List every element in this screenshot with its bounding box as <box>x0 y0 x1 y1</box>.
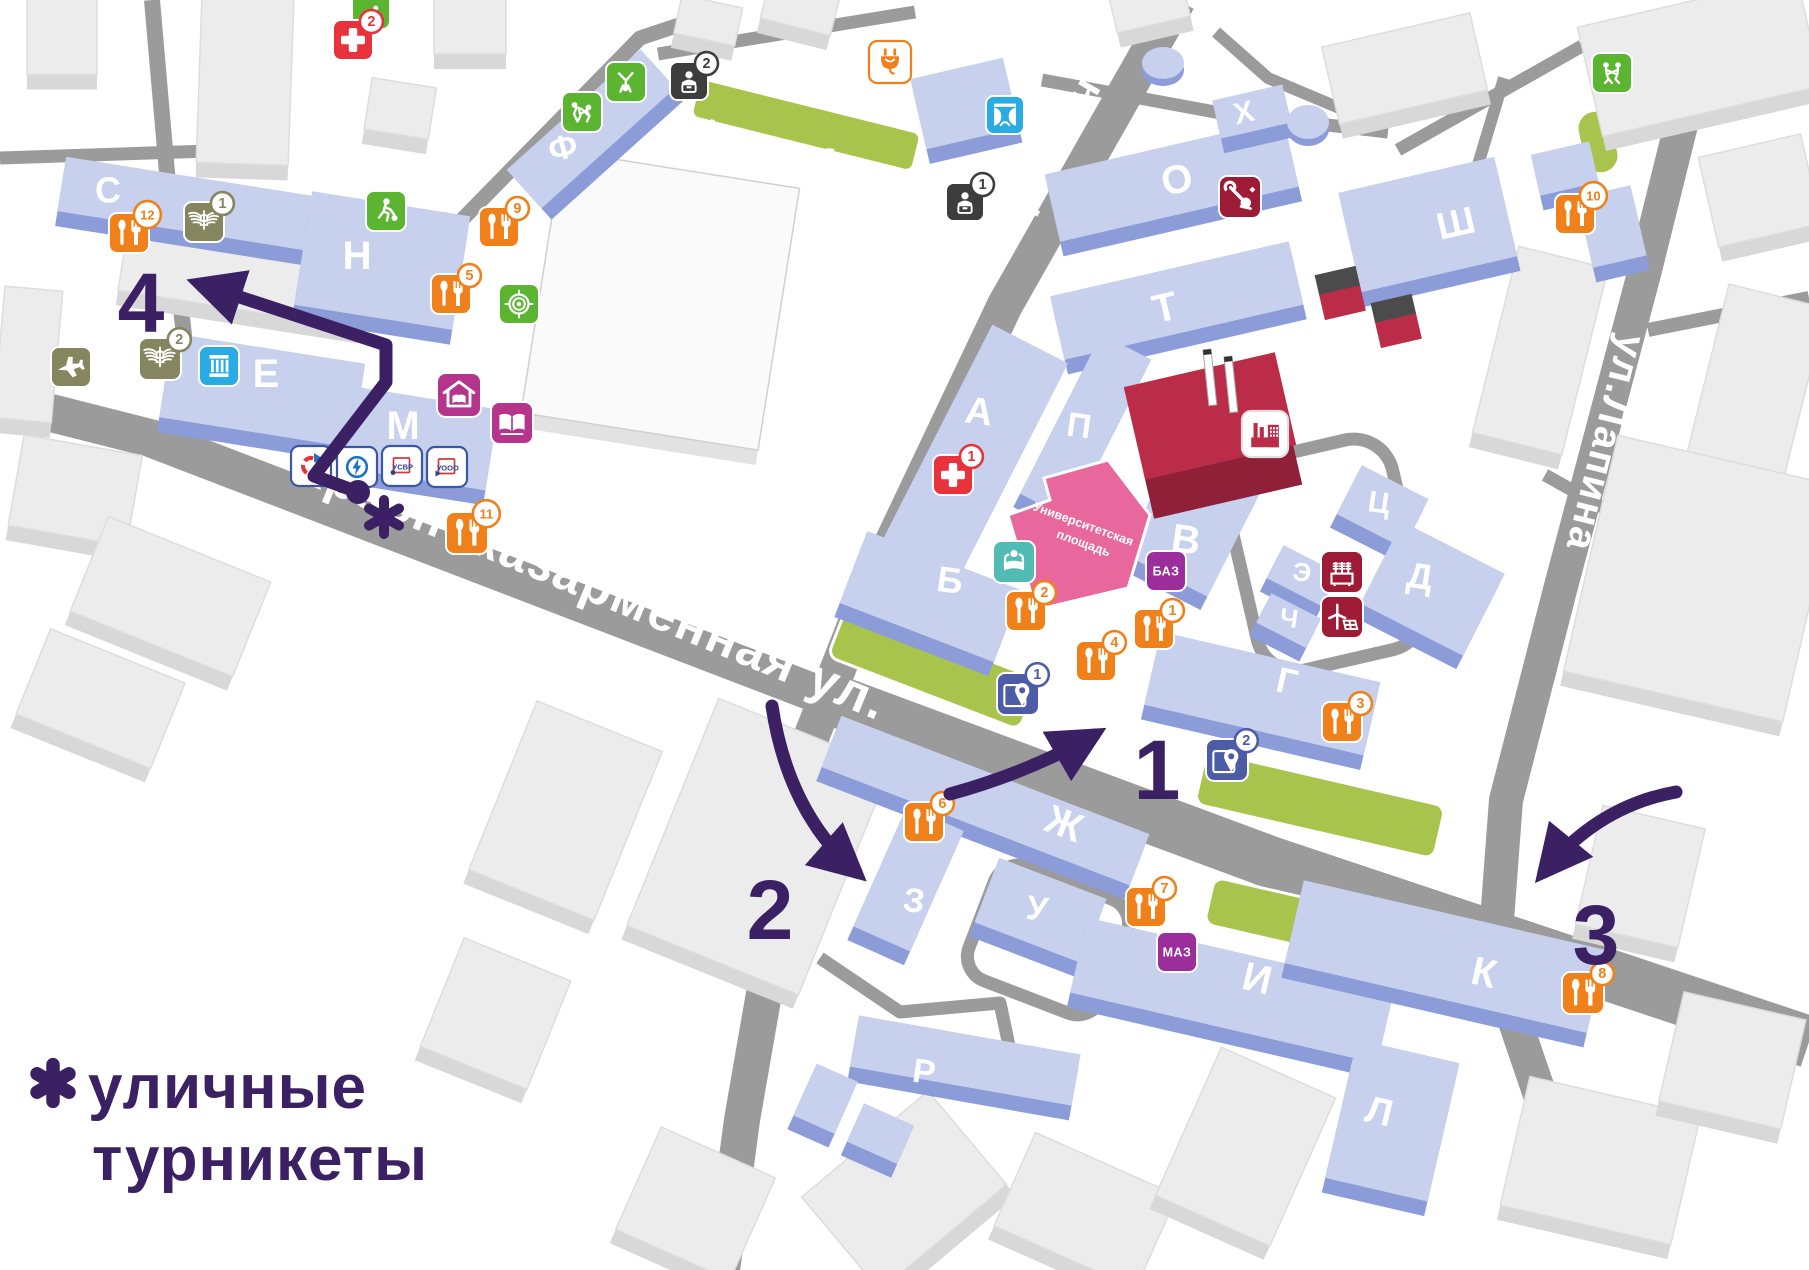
red-house <box>1371 294 1422 348</box>
judo-icon <box>562 92 602 132</box>
city-building <box>1698 134 1809 262</box>
marker-badge-number: 3 <box>1356 696 1364 712</box>
substation-icon <box>1321 551 1363 593</box>
marker-badge-number: 5 <box>465 268 473 284</box>
marker-badge-number: 1 <box>967 449 975 465</box>
marker-badge-number: 2 <box>1040 585 1048 601</box>
svg-text:МАЗ: МАЗ <box>1163 946 1192 960</box>
round-building <box>1142 47 1184 79</box>
marker-badge-number: 11 <box>479 507 493 522</box>
svg-text:БАЗ: БАЗ <box>1153 565 1180 579</box>
heat-plant-icon <box>1242 411 1288 457</box>
marker-badge-number: 9 <box>513 201 521 217</box>
legend-asterisk-icon <box>26 1056 80 1110</box>
marker-badge-number: 2 <box>1242 733 1250 749</box>
svg-text:УСВР: УСВР <box>393 462 414 471</box>
city-building <box>1109 0 1194 48</box>
legend-text-1: уличные <box>88 1052 367 1124</box>
gymnastics-icon <box>606 62 646 102</box>
usvr-office-icon: УСВР <box>382 446 422 486</box>
city-building <box>415 938 571 1103</box>
marker-badge-number: 2 <box>702 56 710 72</box>
marker-badge-number: 6 <box>938 796 946 812</box>
building-letter-М: М <box>386 404 419 448</box>
aviation-icon <box>51 347 91 387</box>
marker-badge-number: 4 <box>1110 635 1118 651</box>
city-building <box>757 0 841 50</box>
marker-badge-number: 1 <box>218 196 226 212</box>
marker-badge-number: 7 <box>1160 881 1168 897</box>
entrance-number-3: 3 <box>1573 888 1620 982</box>
city-building <box>463 701 662 934</box>
marker-badge-number: 2 <box>175 332 183 348</box>
reading-hall-icon <box>491 402 533 444</box>
wrestling-icon <box>1592 53 1632 93</box>
marker-badge-number: 1 <box>1033 667 1041 683</box>
food-icon: 4 <box>1076 631 1126 681</box>
building-Ш <box>1338 157 1520 307</box>
entrance-number-4: 4 <box>118 256 165 350</box>
food-icon: 7 <box>1126 877 1176 927</box>
building-letter-С: С <box>95 170 121 211</box>
ev-charging-icon <box>869 41 911 83</box>
round-building <box>1287 105 1329 139</box>
shooting-range-icon <box>499 284 539 324</box>
legend-text-2: турникеты <box>92 1124 428 1196</box>
turnstile-dot <box>346 480 370 504</box>
building-letter-Н: Н <box>343 234 372 278</box>
maz-label: МАЗ <box>1157 932 1197 972</box>
museum-icon <box>199 346 239 386</box>
uooo-office-icon: УООО <box>427 447 467 487</box>
library-icon <box>437 373 481 417</box>
marker-badge-number: 2 <box>367 14 375 30</box>
city-building <box>27 0 97 90</box>
city-building <box>434 0 506 69</box>
city-building <box>1322 13 1491 139</box>
legend: уличные турникеты <box>26 1052 428 1196</box>
baz-label: БАЗ <box>1146 551 1186 591</box>
city-building <box>196 0 294 181</box>
library-reading-icon <box>993 541 1035 583</box>
renewable-energy-icon <box>1321 596 1363 638</box>
city-building <box>362 78 437 154</box>
building-letter-Е: Е <box>253 352 280 396</box>
marker-badge-number: 1 <box>1168 603 1176 619</box>
entrance-number-1: 1 <box>1134 723 1181 817</box>
building-letter-А: А <box>962 389 995 434</box>
city-building <box>1149 1047 1335 1260</box>
theater-icon <box>986 96 1024 134</box>
building-annex <box>787 1063 857 1147</box>
building-Р <box>847 1015 1080 1120</box>
workshop-icon <box>1219 176 1261 218</box>
marker-badge-number: 10 <box>1586 189 1600 204</box>
building-letter-Ц: Ц <box>1366 485 1392 521</box>
sports-games-icon <box>366 191 406 231</box>
entrance-number-2: 2 <box>747 863 794 957</box>
marker-badge-number: 12 <box>140 208 154 223</box>
svg-text:УООО: УООО <box>437 463 459 472</box>
city-building <box>988 1133 1177 1270</box>
marker-badge-number: 1 <box>978 177 986 193</box>
